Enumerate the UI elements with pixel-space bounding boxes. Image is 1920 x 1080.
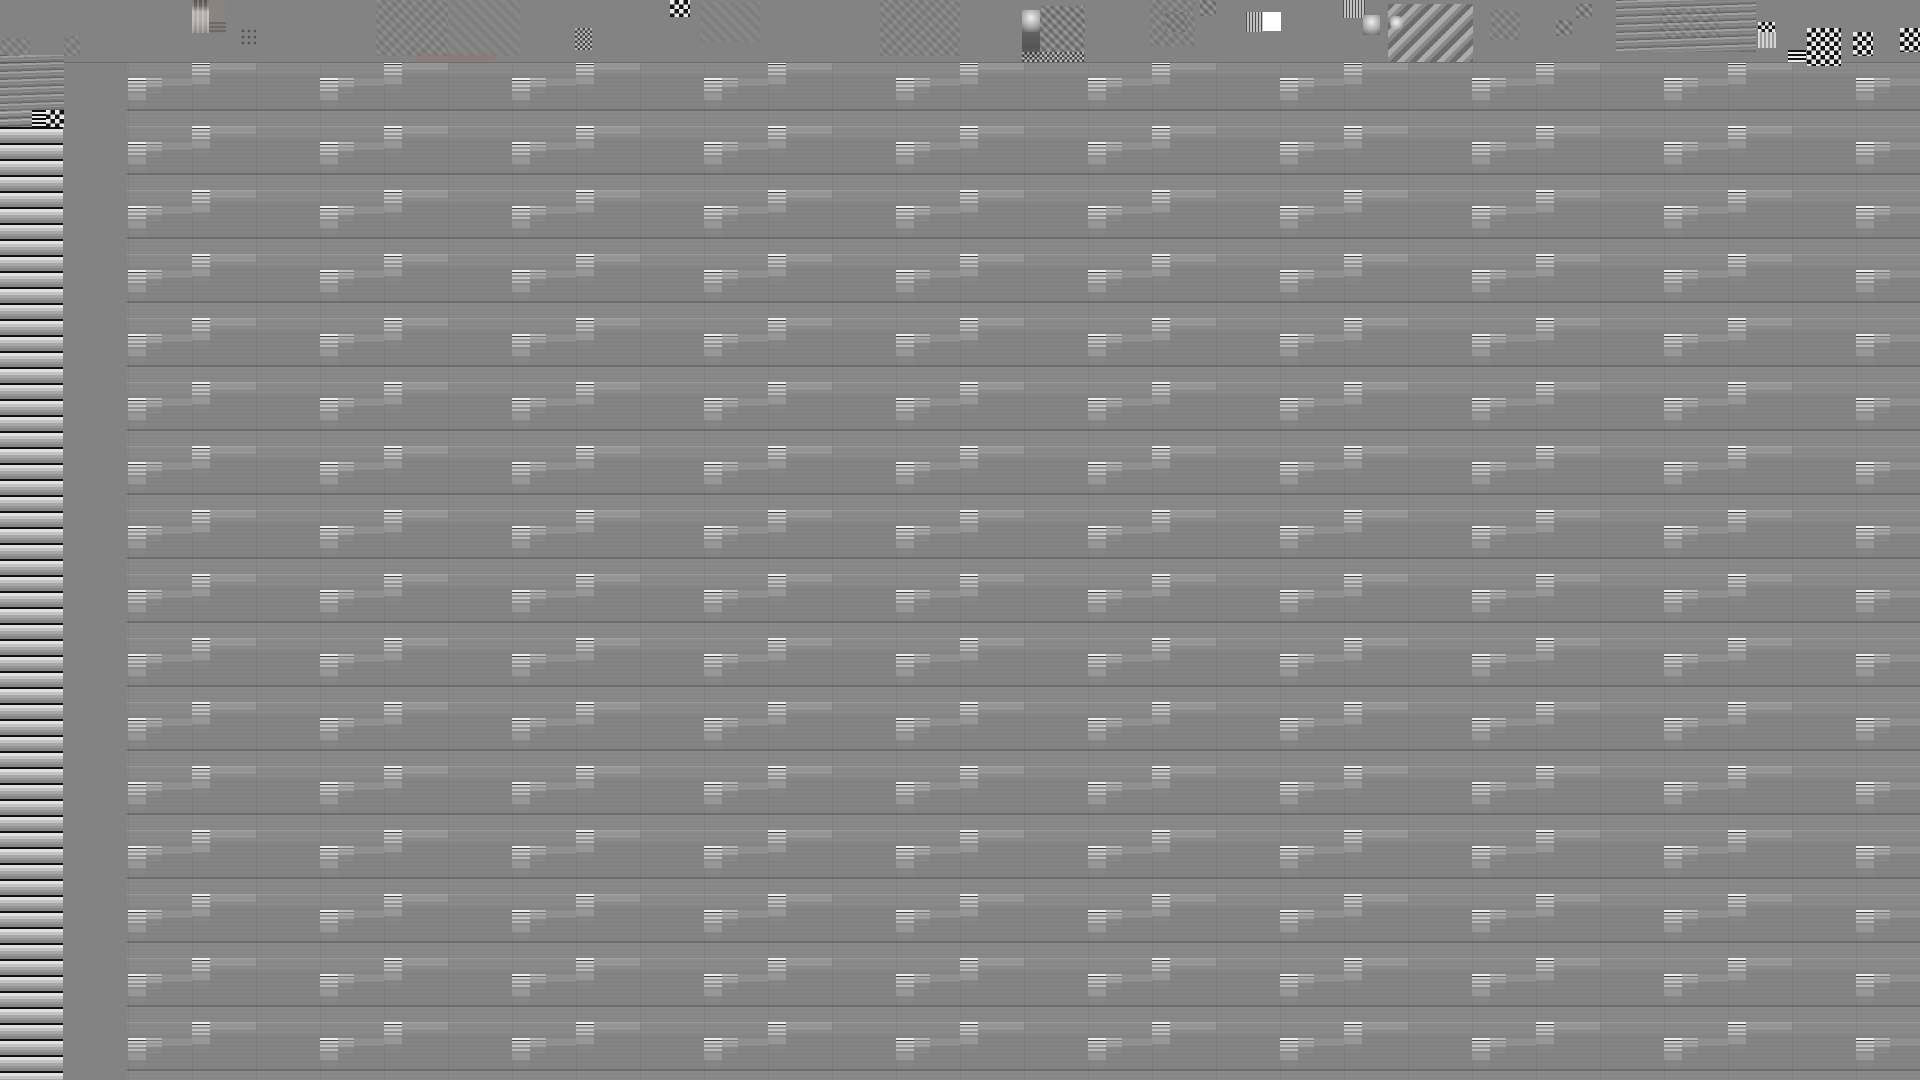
glitch-column-a xyxy=(1472,62,1490,1080)
glitch-column-ext xyxy=(146,62,192,1080)
noise-block-mottle xyxy=(1200,0,1216,16)
noise-block-soft-noise xyxy=(1490,10,1520,40)
noise-block-hlines-dark xyxy=(209,22,226,33)
noise-block-checker-bw xyxy=(1853,32,1873,56)
glitch-column-b xyxy=(960,62,978,1080)
noise-block-checker-bw xyxy=(1900,28,1920,52)
noise-block-mottle xyxy=(1165,12,1187,32)
noise-block-hstripes-bw xyxy=(32,110,46,127)
noise-block-mottle xyxy=(1556,20,1572,36)
left-stripe-band xyxy=(0,127,63,1080)
noise-block-light-blob xyxy=(1363,15,1380,35)
glitch-column-b xyxy=(1536,62,1554,1080)
noise-block-brown-block xyxy=(209,0,226,22)
glitch-column-ext xyxy=(1874,62,1920,1080)
glitch-column-a xyxy=(512,62,530,1080)
glitch-column-b xyxy=(1344,62,1362,1080)
corrupted-screen xyxy=(0,0,1920,1080)
noise-block-flag-gradient xyxy=(1758,22,1776,48)
glitch-column-b xyxy=(576,62,594,1080)
glitch-column-b xyxy=(1152,62,1170,1080)
noise-block-soft-noise xyxy=(64,36,80,56)
noise-block-soft-noise-light xyxy=(700,2,760,42)
glitch-column-ext xyxy=(786,62,832,1080)
glitch-column-b xyxy=(384,62,402,1080)
glitch-column-ext xyxy=(530,62,576,1080)
glitch-column-ext xyxy=(722,62,768,1080)
glitch-column-a xyxy=(1280,62,1298,1080)
glitch-column-ext xyxy=(1106,62,1152,1080)
top-noise-band xyxy=(0,0,1920,63)
glitch-grid xyxy=(64,62,1920,1080)
glitch-column-a xyxy=(896,62,914,1080)
noise-block-checker-bw xyxy=(46,110,64,127)
noise-block-diag-stripes xyxy=(1388,4,1473,62)
glitch-column-ext xyxy=(1746,62,1792,1080)
glitch-column-ext xyxy=(1170,62,1216,1080)
glitch-column-ext xyxy=(914,62,960,1080)
glitch-column-a xyxy=(1856,62,1874,1080)
glitch-column-a xyxy=(320,62,338,1080)
noise-block-checker-fine xyxy=(575,28,592,50)
noise-block-mottle xyxy=(1576,4,1592,18)
noise-block-gradient-dot xyxy=(1390,16,1404,30)
glitch-column-ext xyxy=(594,62,640,1080)
noise-block-wavy xyxy=(0,110,32,127)
glitch-column-ext xyxy=(978,62,1024,1080)
plain-gray-strip xyxy=(64,62,127,1080)
noise-block-warm-smudge xyxy=(415,53,495,61)
noise-block-soft-noise xyxy=(1660,8,1720,38)
noise-block-v-lines xyxy=(1343,0,1365,18)
noise-block-checker-bw xyxy=(670,0,690,17)
noise-block-checker-bw xyxy=(1807,28,1841,66)
noise-block-mottle xyxy=(1040,6,1085,56)
noise-block-dot-grid xyxy=(240,28,256,46)
glitch-column-ext xyxy=(1554,62,1600,1080)
noise-block-light-blob xyxy=(1022,10,1040,32)
glitch-column-ext xyxy=(1682,62,1728,1080)
glitch-column-ext xyxy=(1362,62,1408,1080)
noise-block-v-lines xyxy=(1246,12,1263,32)
glitch-column-ext xyxy=(338,62,384,1080)
noise-block-pink-gradient xyxy=(192,0,209,33)
glitch-column-b xyxy=(768,62,786,1080)
noise-block-soft-noise xyxy=(880,0,960,56)
glitch-column-a xyxy=(704,62,722,1080)
glitch-column-ext xyxy=(210,62,256,1080)
glitch-column-b xyxy=(1728,62,1746,1080)
glitch-column-b xyxy=(192,62,210,1080)
glitch-column-ext xyxy=(402,62,448,1080)
glitch-column-ext xyxy=(1490,62,1536,1080)
noise-block-soft-noise xyxy=(376,0,448,56)
glitch-column-a xyxy=(1088,62,1106,1080)
noise-block-hstripes-bw xyxy=(1788,50,1806,62)
noise-block-checker-fine xyxy=(1022,52,1085,62)
noise-block-soft-noise-light xyxy=(448,0,520,56)
noise-block-white-square xyxy=(1263,12,1281,31)
glitch-column-a xyxy=(1664,62,1682,1080)
glitch-column-ext xyxy=(1298,62,1344,1080)
glitch-column-a xyxy=(128,62,146,1080)
